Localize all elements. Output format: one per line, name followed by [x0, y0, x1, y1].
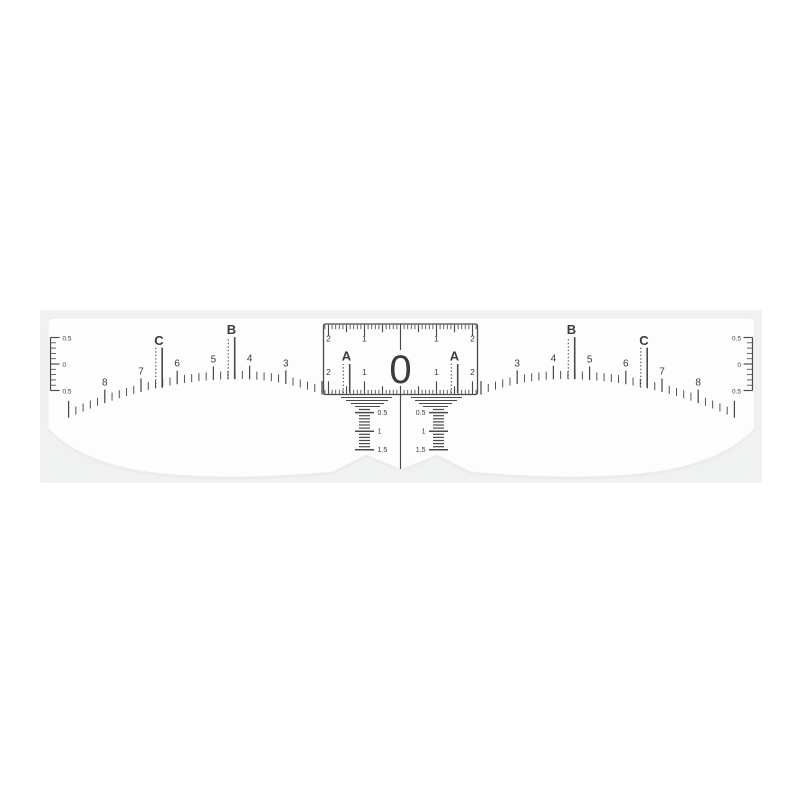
right-arc-number: 5	[587, 354, 593, 365]
marker-letter-a-left: A	[342, 349, 352, 364]
marker-letter-c-left: C	[154, 333, 164, 348]
left-arc-number: 5	[211, 354, 217, 365]
right-arc-number: 8	[695, 378, 701, 389]
left-arc-number: 4	[247, 354, 253, 365]
marker-letter-a-right: A	[450, 349, 460, 364]
marker-letter-b-left: B	[227, 322, 236, 337]
left-edge-scale-label: 0.5	[63, 336, 72, 343]
left-arc-number: 8	[102, 378, 108, 389]
left-drop-scale-label: 0.5	[378, 410, 388, 417]
right-drop-scale-label: 1	[422, 429, 426, 436]
box-top-scale-label: 2	[326, 334, 331, 344]
box-top-scale-label: 1	[362, 334, 367, 344]
box-top-scale-label: 2	[470, 334, 475, 344]
right-drop-scale-label: 0.5	[416, 410, 426, 417]
box-inner-scale-label: 2	[326, 367, 331, 377]
box-top-scale-label: 1	[434, 334, 439, 344]
marker-letter-b-right: B	[567, 322, 576, 337]
left-drop-scale-label: 1	[378, 429, 382, 436]
left-arc-number: 3	[283, 358, 289, 369]
left-edge-scale-label: 0	[63, 362, 67, 369]
eyebrow-ruler-product-image: 0 2 1 1 2 2 1 1 2 A A B B C C 8 7 6 5 4 …	[0, 0, 800, 800]
right-drop-scale-label: 1.5	[416, 447, 426, 454]
marker-letter-c-right: C	[639, 333, 649, 348]
right-edge-scale-label: 0	[737, 362, 741, 369]
box-inner-scale-label: 2	[470, 367, 475, 377]
right-edge-scale-label: 0.5	[732, 389, 741, 396]
eyebrow-ruler-graphic: 0 2 1 1 2 2 1 1 2 A A B B C C 8 7 6 5 4 …	[0, 0, 800, 800]
left-drop-scale-label: 1.5	[378, 447, 388, 454]
right-arc-number: 3	[514, 358, 520, 369]
right-arc-number: 7	[659, 366, 665, 377]
box-inner-scale-label: 1	[434, 367, 439, 377]
right-edge-scale-label: 0.5	[732, 336, 741, 343]
right-arc-number: 6	[623, 359, 629, 370]
box-inner-scale-label: 1	[362, 367, 367, 377]
center-zero-label: 0	[389, 348, 411, 392]
right-arc-number: 4	[551, 354, 557, 365]
left-arc-number: 6	[174, 359, 180, 370]
left-edge-scale-label: 0.5	[63, 389, 72, 396]
left-arc-number: 7	[138, 366, 144, 377]
